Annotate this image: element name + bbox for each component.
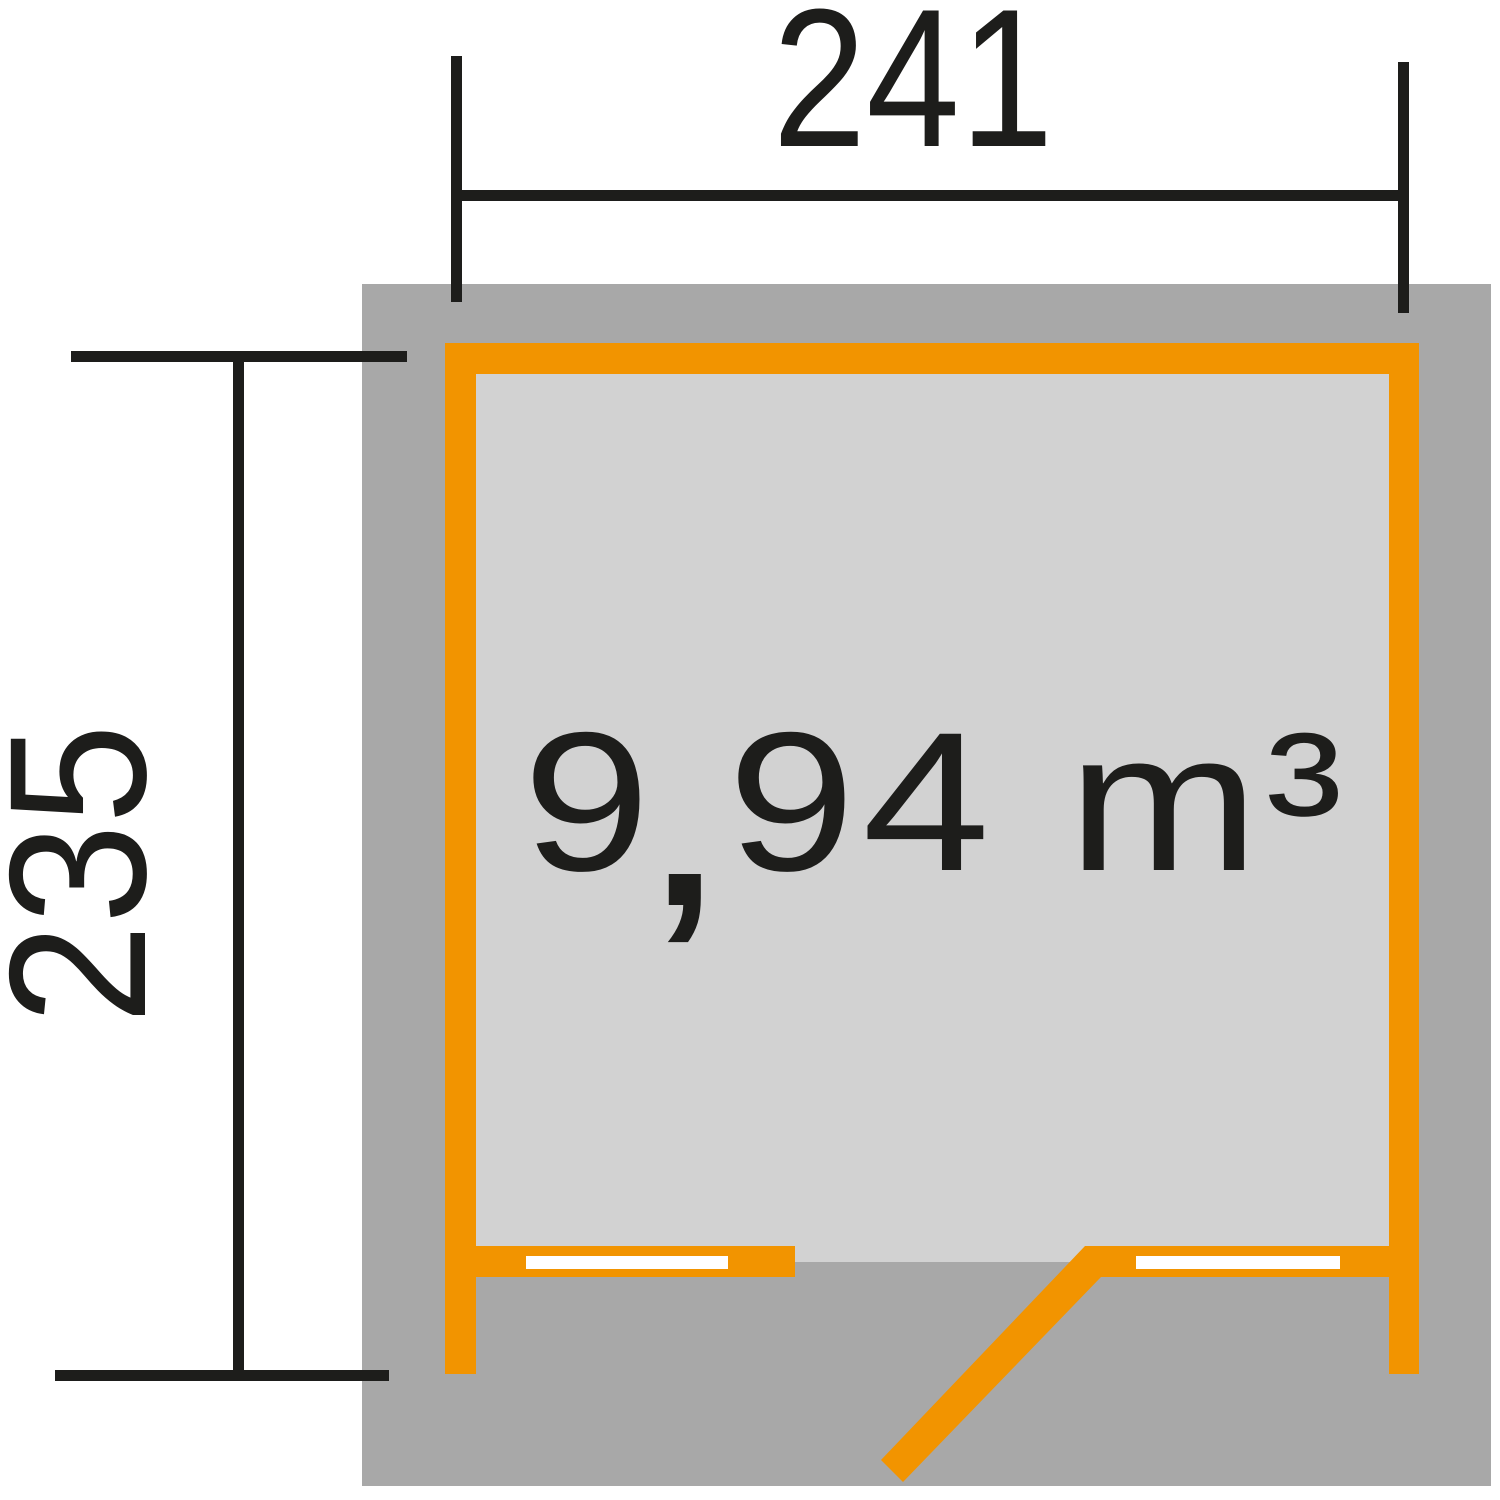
svg-text:235: 235 bbox=[0, 724, 187, 1024]
svg-text:241: 241 bbox=[773, 0, 1054, 188]
